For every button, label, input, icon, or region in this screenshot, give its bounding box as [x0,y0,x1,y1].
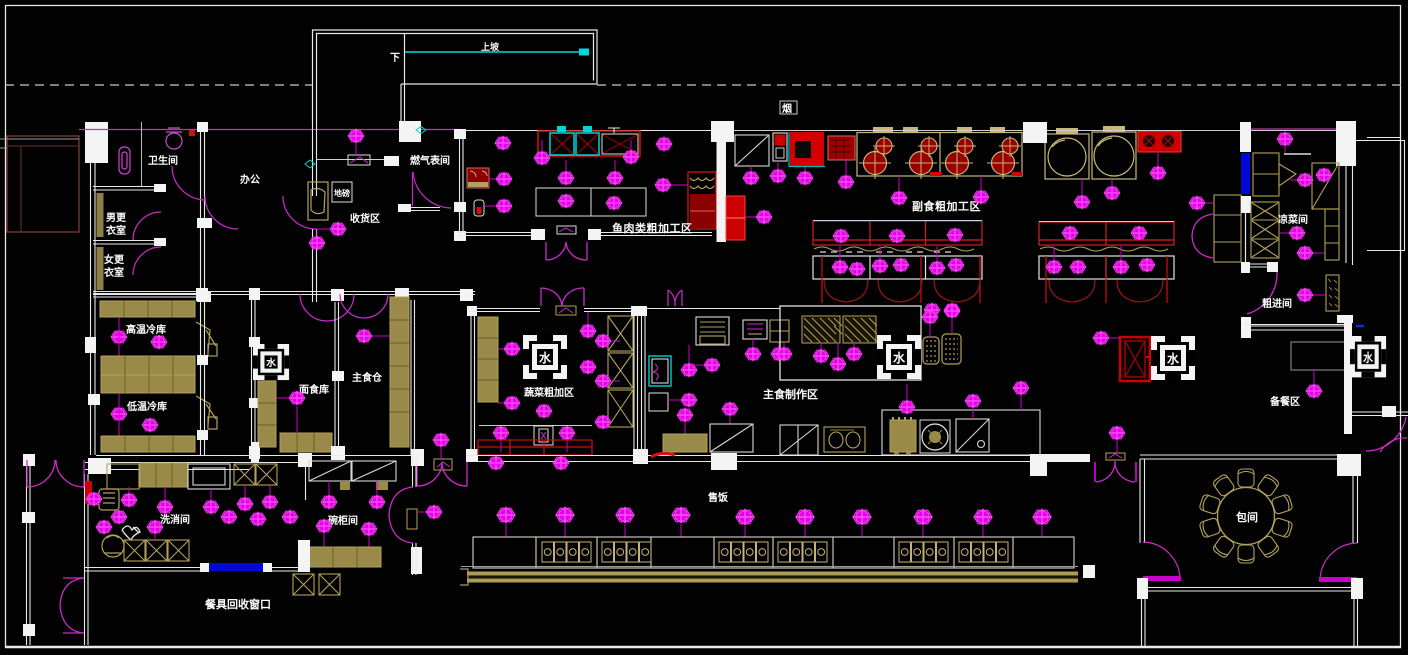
svg-text:男更: 男更 [106,212,127,224]
svg-text:高温冷库: 高温冷库 [126,323,166,336]
svg-text:主食制作区: 主食制作区 [763,387,818,401]
svg-text:女更: 女更 [104,253,125,266]
svg-text:衣室: 衣室 [104,266,124,279]
svg-text:上坡: 上坡 [481,41,500,52]
svg-text:办公: 办公 [240,173,260,186]
svg-text:碗柜间: 碗柜间 [328,514,358,527]
svg-text:售饭: 售饭 [708,491,728,504]
svg-text:蔬菜粗加区: 蔬菜粗加区 [524,386,574,399]
svg-text:餐具回收窗口: 餐具回收窗口 [204,597,271,611]
svg-text:鱼肉类粗加工区: 鱼肉类粗加工区 [612,221,693,235]
svg-text:主食仓: 主食仓 [352,371,383,384]
svg-text:包间: 包间 [1235,510,1258,524]
svg-text:燃气表间: 燃气表间 [410,154,450,167]
svg-text:烟: 烟 [782,102,792,115]
svg-text:收货区: 收货区 [350,212,380,225]
svg-text:洗消间: 洗消间 [160,513,190,526]
svg-text:下: 下 [390,52,400,64]
svg-text:卫生间: 卫生间 [148,154,178,167]
svg-text:副食粗加工区: 副食粗加工区 [912,199,981,213]
svg-text:衣室: 衣室 [106,224,126,237]
svg-text:凉菜间: 凉菜间 [1278,213,1308,226]
svg-text:面食库: 面食库 [299,383,329,396]
svg-text:地磅: 地磅 [334,188,350,198]
svg-text:备餐区: 备餐区 [1269,395,1300,408]
svg-text:低温冷库: 低温冷库 [126,400,167,413]
svg-text:粗进间: 粗进间 [1262,297,1292,310]
